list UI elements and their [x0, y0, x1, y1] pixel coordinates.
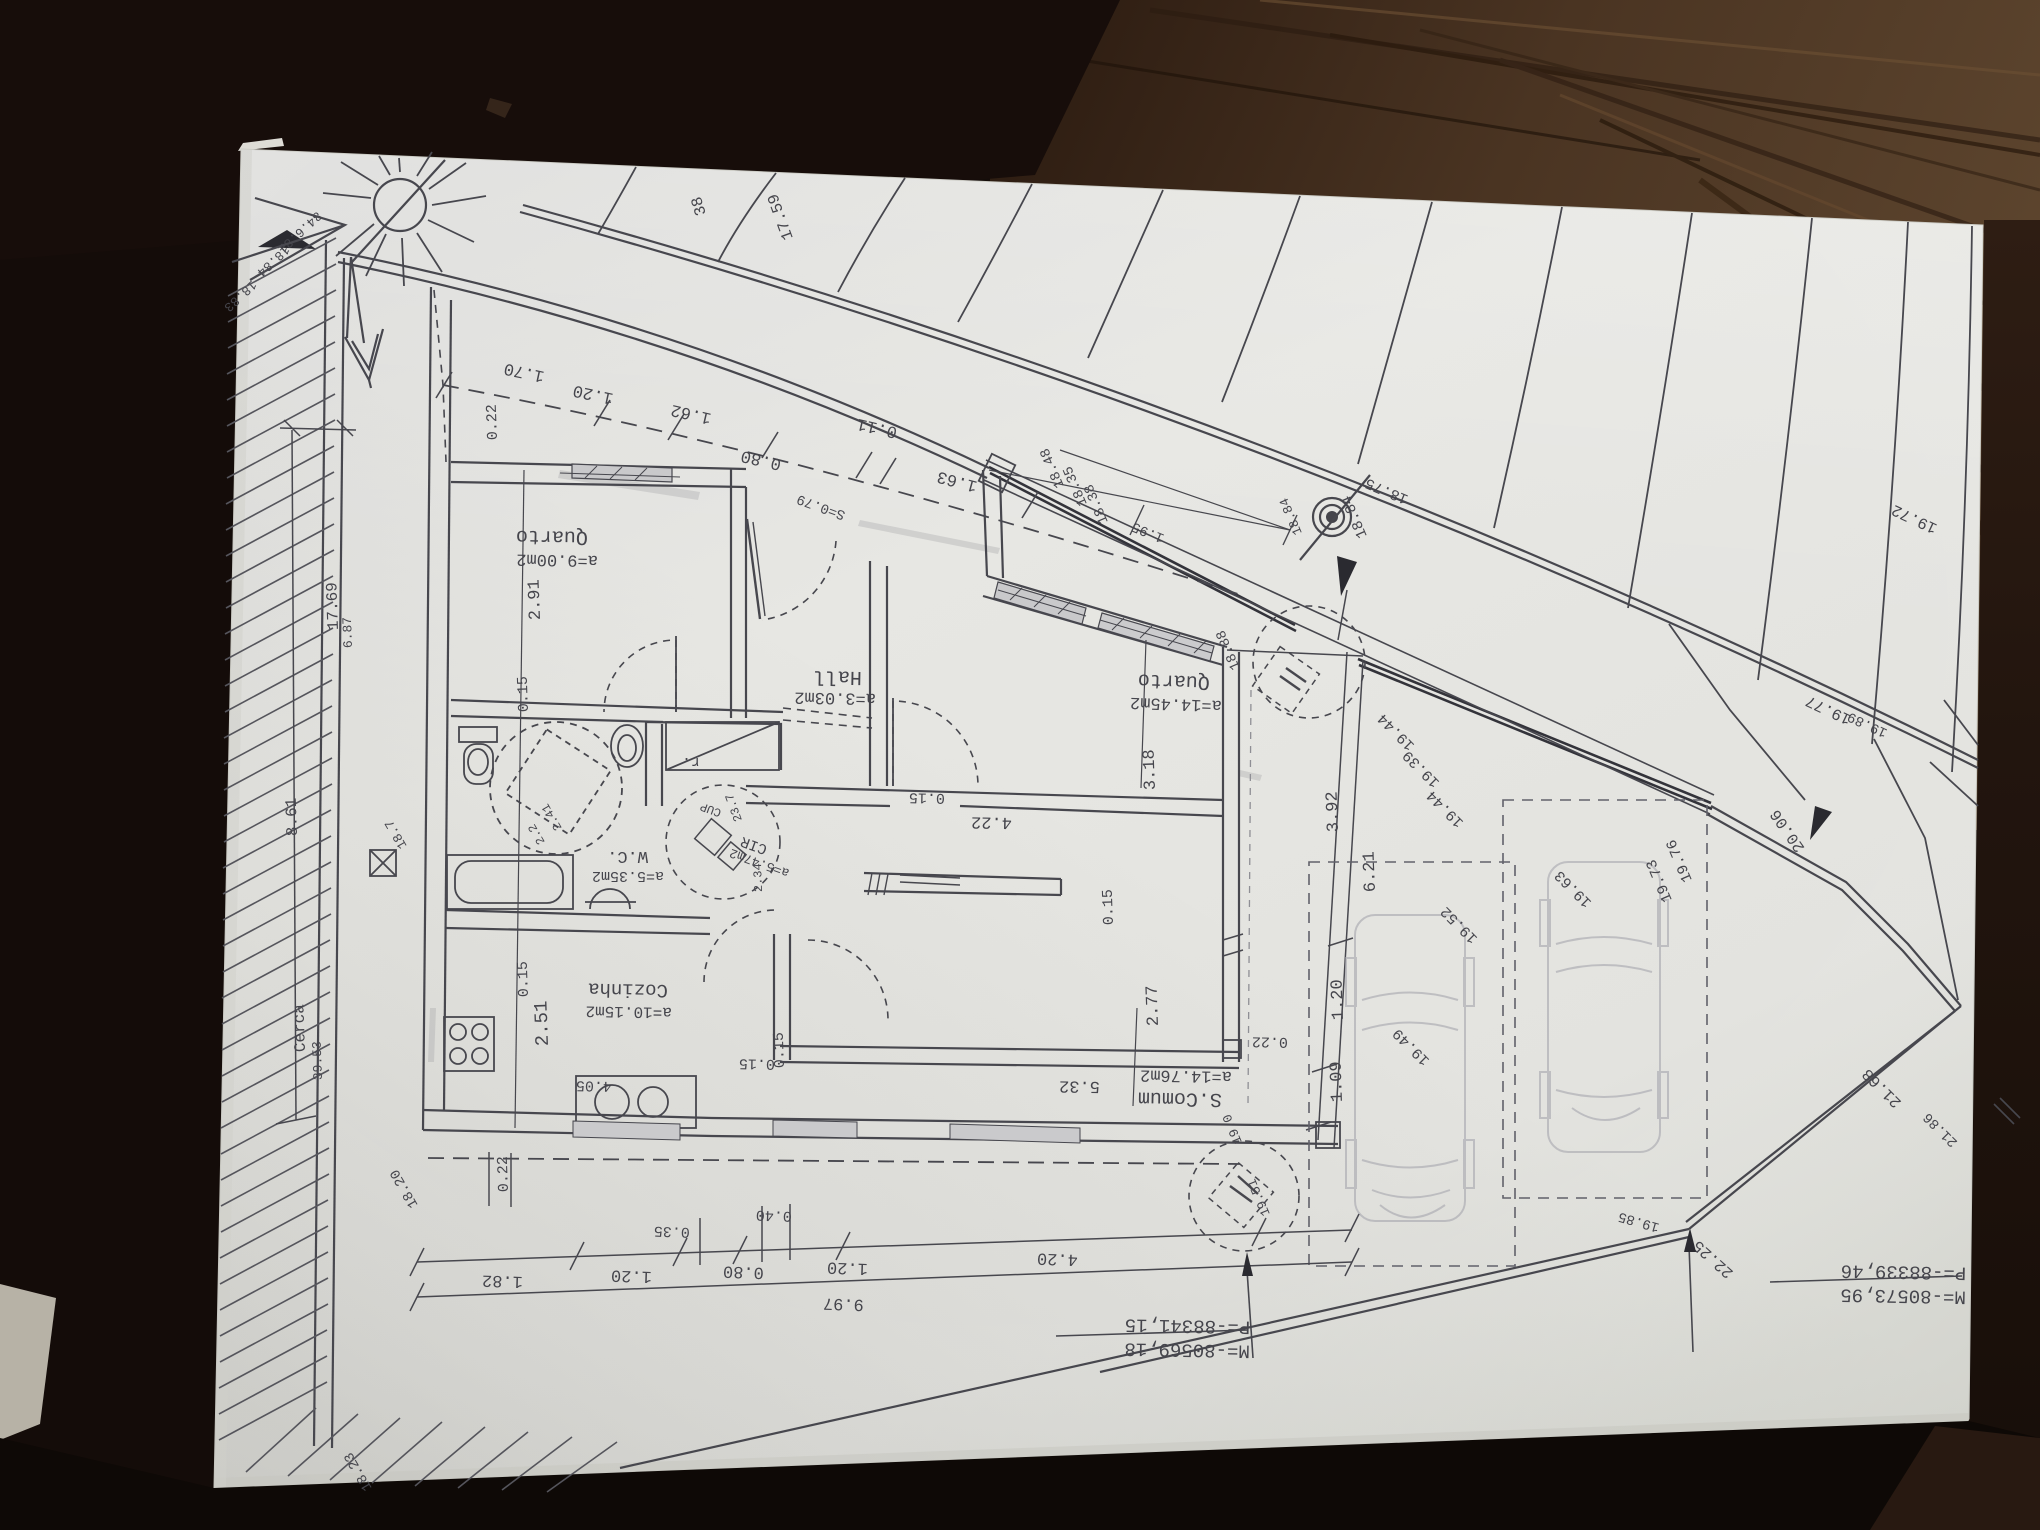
- svg-text:Quarto: Quarto: [1137, 667, 1210, 692]
- svg-text:Quarto: Quarto: [516, 524, 588, 548]
- svg-text:6.21: 6.21: [1361, 851, 1381, 892]
- svg-text:0.22: 0.22: [1252, 1032, 1288, 1050]
- svg-text:4.20: 4.20: [1037, 1248, 1078, 1268]
- svg-text:0.35: 0.35: [654, 1222, 691, 1240]
- svg-text:2.91: 2.91: [526, 579, 546, 620]
- svg-text:a=5.35m2: a=5.35m2: [592, 867, 664, 884]
- svg-text:2.77: 2.77: [1144, 985, 1164, 1026]
- svg-text:a=14.45m2: a=14.45m2: [1130, 692, 1222, 714]
- svg-text:a=9.00m2: a=9.00m2: [516, 549, 598, 569]
- svg-text:2.34: 2.34: [751, 863, 766, 892]
- svg-text:W.C.: W.C.: [607, 846, 648, 865]
- svg-text:5.32: 5.32: [1059, 1075, 1100, 1095]
- svg-text:a=10.15m2: a=10.15m2: [585, 1001, 672, 1021]
- svg-text:0.15: 0.15: [739, 1054, 775, 1072]
- svg-text:4.05: 4.05: [576, 1076, 612, 1094]
- svg-text:Hall: Hall: [814, 664, 862, 688]
- svg-text:Cozinha: Cozinha: [588, 978, 668, 1001]
- svg-text:0.15: 0.15: [515, 676, 533, 713]
- svg-text:0.22: 0.22: [484, 404, 502, 441]
- svg-text:1.82: 1.82: [482, 1270, 523, 1290]
- svg-text:0.15: 0.15: [1100, 889, 1118, 926]
- svg-text:39.53: 39.53: [310, 1041, 326, 1081]
- svg-text:4.22: 4.22: [971, 811, 1012, 831]
- svg-text:M=-80569,18: M=-80569,18: [1124, 1337, 1250, 1361]
- svg-text:a=3.03m2: a=3.03m2: [794, 687, 876, 707]
- svg-text:0.40: 0.40: [756, 1206, 793, 1224]
- svg-text:9.97: 9.97: [823, 1293, 864, 1313]
- svg-text:a=14.76m2: a=14.76m2: [1140, 1064, 1232, 1085]
- svg-text:Cerca: Cerca: [290, 1003, 310, 1052]
- svg-text:1.20: 1.20: [611, 1265, 652, 1285]
- svg-text:0.15: 0.15: [515, 961, 533, 998]
- svg-text:3.18: 3.18: [1141, 749, 1161, 790]
- svg-text:M=-80573,95: M=-80573,95: [1840, 1283, 1966, 1307]
- svg-text:r.: r.: [682, 753, 700, 770]
- svg-text:0.15: 0.15: [909, 788, 945, 806]
- svg-text:2.51: 2.51: [530, 1000, 554, 1046]
- svg-text:6.87: 6.87: [340, 617, 356, 649]
- svg-text:8.61: 8.61: [283, 797, 302, 836]
- svg-text:1.20: 1.20: [827, 1257, 868, 1277]
- svg-text:0.80: 0.80: [723, 1261, 764, 1281]
- svg-text:3.92: 3.92: [1324, 791, 1344, 832]
- svg-text:S.Comum: S.Comum: [1138, 1086, 1222, 1110]
